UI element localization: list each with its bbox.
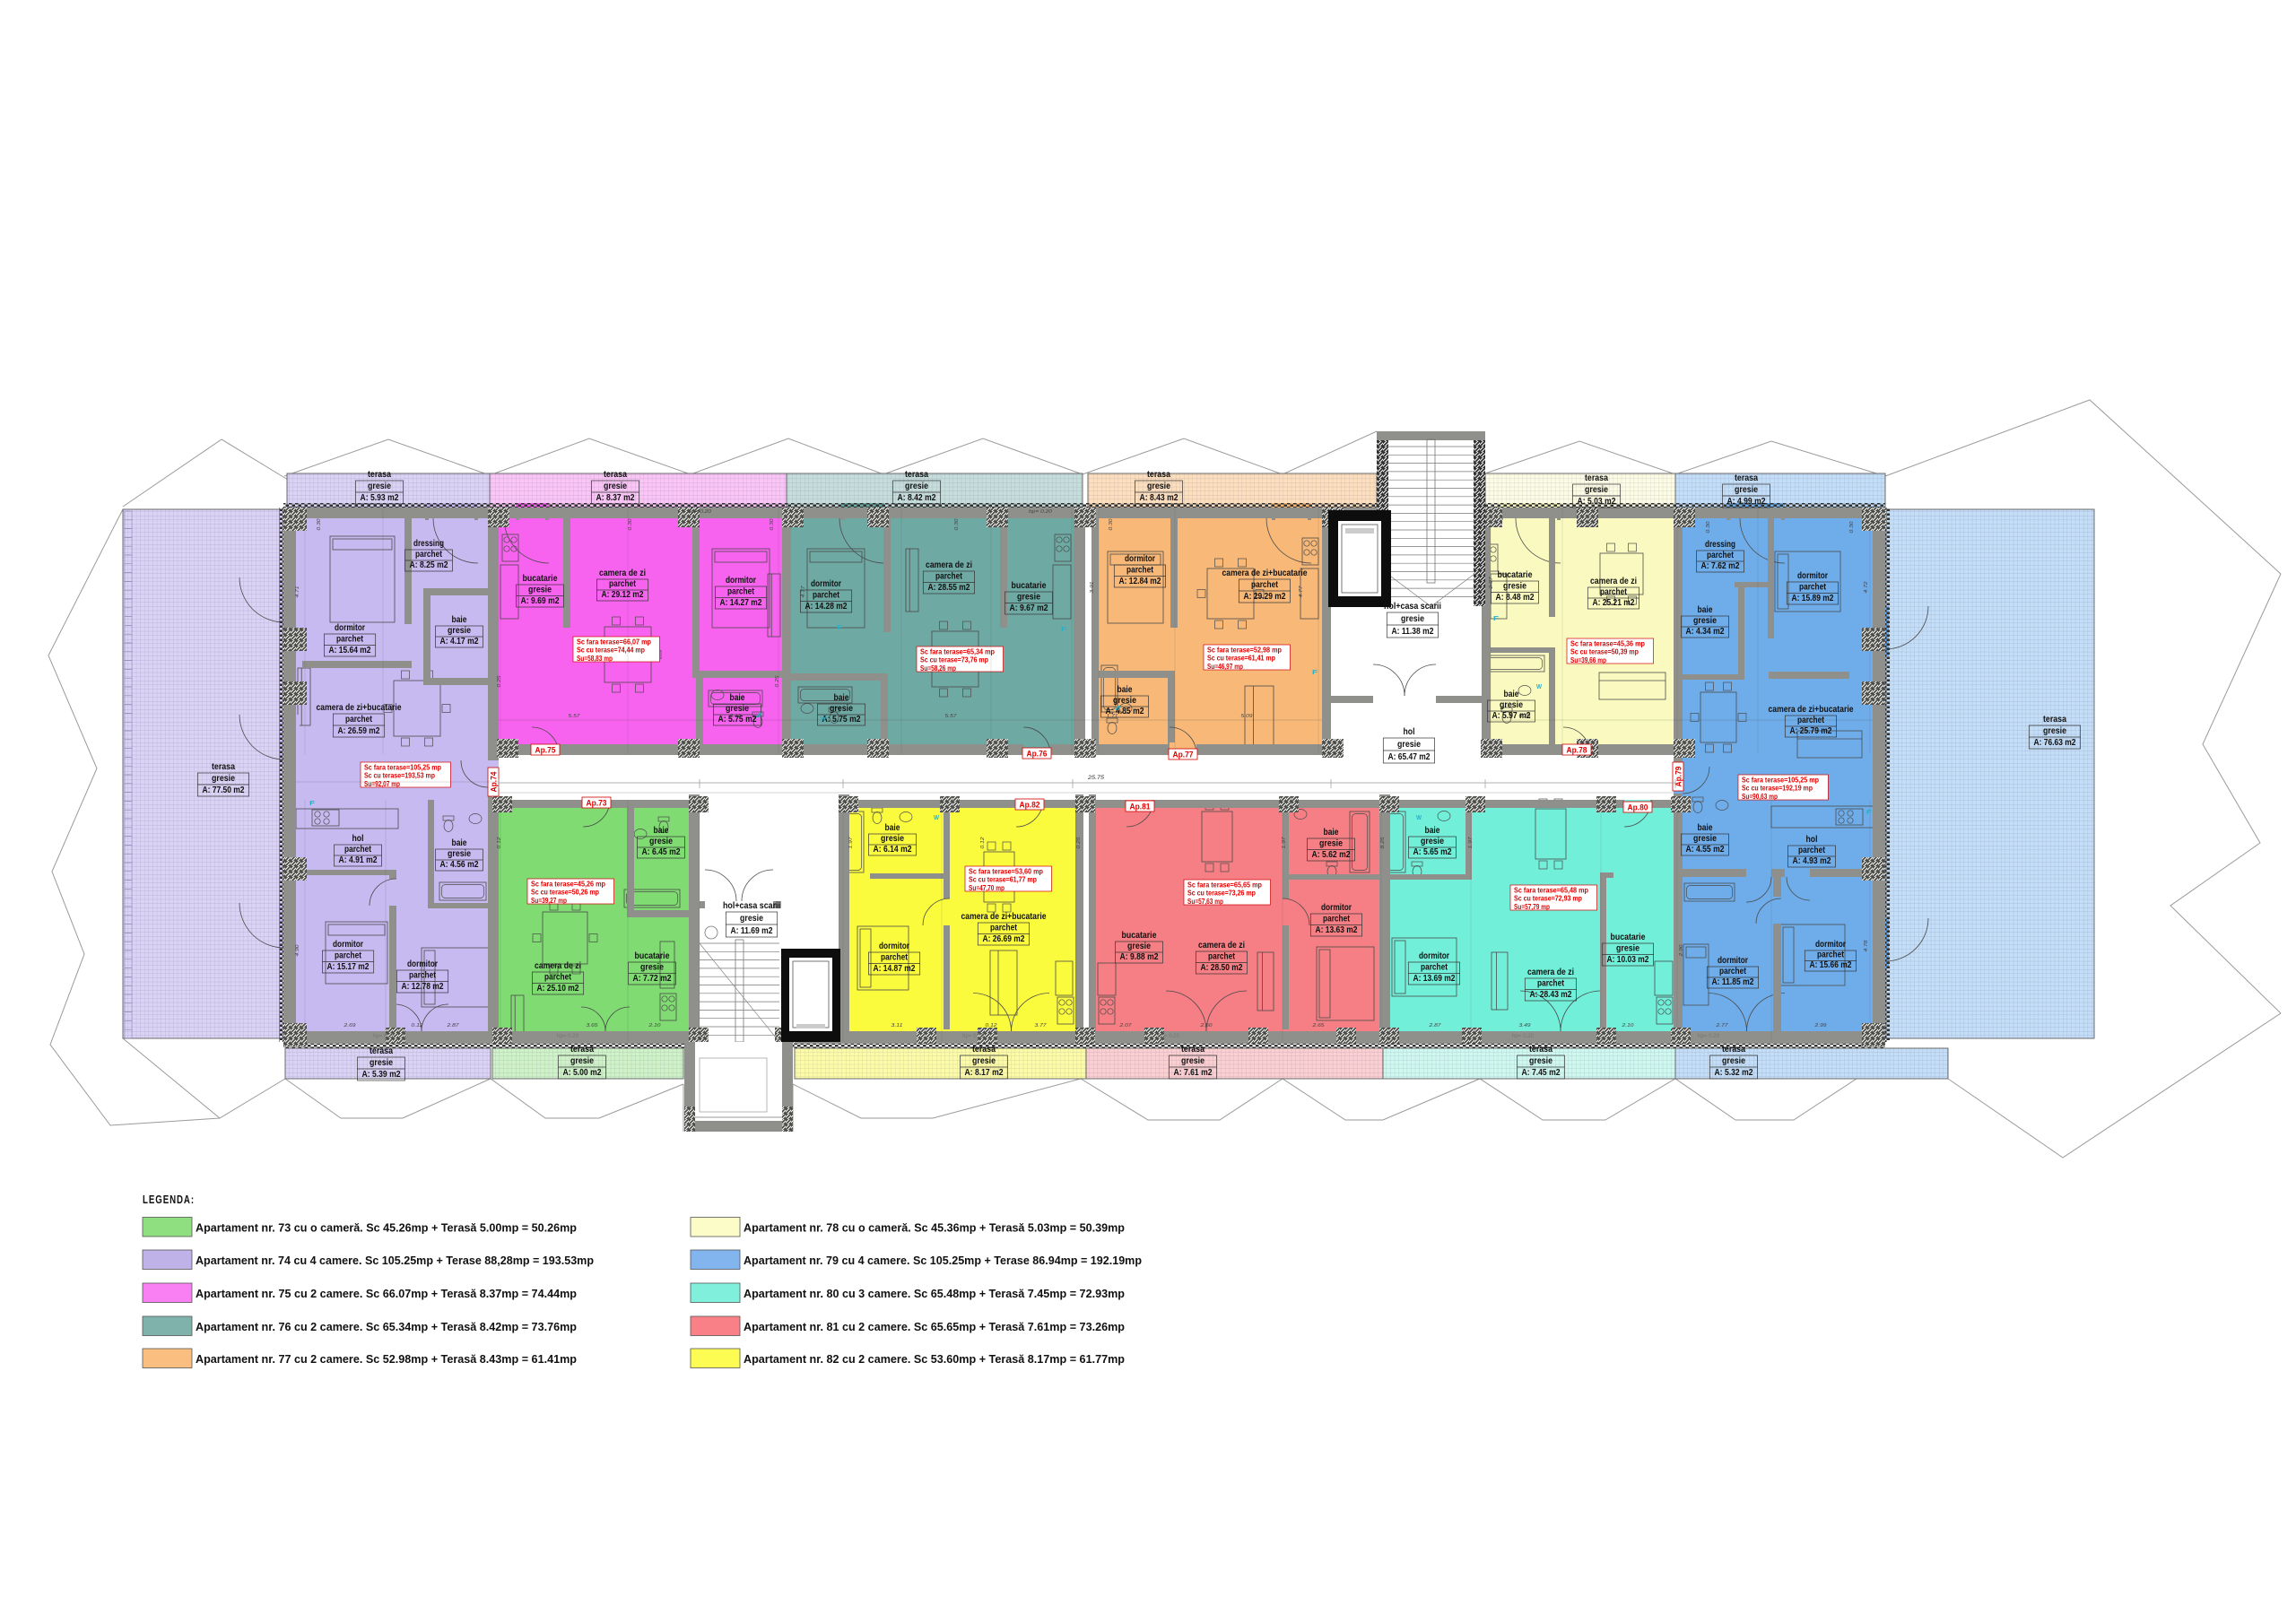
svg-text:gresie: gresie (1017, 592, 1040, 603)
svg-text:Su=57,63 mp: Su=57,63 mp (1187, 897, 1223, 906)
svg-text:terasa: terasa (1181, 1044, 1205, 1055)
svg-text:gresie: gresie (1397, 739, 1421, 750)
svg-text:gresie: gresie (1693, 833, 1717, 844)
svg-text:hol: hol (1806, 834, 1818, 845)
svg-text:camera de zi: camera de zi (1198, 940, 1245, 950)
svg-text:3.11: 3.11 (891, 1023, 903, 1028)
svg-text:A: 29.29 m2: A: 29.29 m2 (1244, 591, 1286, 602)
svg-text:hp= 0.20: hp= 0.20 (373, 1034, 396, 1039)
svg-text:camera de zi: camera de zi (1527, 967, 1574, 977)
svg-text:parchet: parchet (1600, 586, 1627, 597)
svg-text:bucatarie: bucatarie (523, 573, 558, 584)
svg-text:parchet: parchet (1798, 845, 1825, 855)
svg-text:parchet: parchet (345, 714, 372, 725)
svg-text:A: 14.28 m2: A: 14.28 m2 (805, 601, 848, 612)
svg-text:parchet: parchet (727, 586, 754, 597)
svg-text:gresie: gresie (1503, 581, 1526, 592)
svg-text:parchet: parchet (881, 952, 908, 963)
svg-text:5.57: 5.57 (569, 714, 581, 719)
svg-text:A: 12.84 m2: A: 12.84 m2 (1119, 576, 1161, 586)
svg-text:dormitor: dormitor (1815, 939, 1846, 950)
svg-text:gresie: gresie (528, 585, 552, 595)
svg-text:A: 13.63 m2: A: 13.63 m2 (1316, 924, 1358, 935)
svg-text:gresie: gresie (726, 703, 749, 714)
svg-text:terasa: terasa (1722, 1044, 1745, 1055)
svg-text:bucatarie: bucatarie (1122, 930, 1157, 941)
svg-text:Su=47,70 mp: Su=47,70 mp (969, 883, 1004, 892)
svg-text:gresie: gresie (640, 962, 664, 973)
svg-text:gresie: gresie (649, 836, 673, 846)
svg-text:parchet: parchet (1817, 950, 1844, 960)
svg-text:parchet: parchet (415, 549, 442, 560)
svg-text:parchet: parchet (1421, 962, 1448, 973)
svg-text:parchet: parchet (935, 571, 962, 582)
svg-text:A: 5.65 m2: A: 5.65 m2 (1413, 846, 1452, 857)
svg-text:gresie: gresie (1722, 1055, 1745, 1066)
svg-text:0.12: 0.12 (497, 837, 502, 849)
svg-text:Su=58,83 mp: Su=58,83 mp (577, 654, 613, 663)
svg-text:A: 25.79 m2: A: 25.79 m2 (1790, 725, 1832, 736)
svg-text:Su=39,66 mp: Su=39,66 mp (1570, 655, 1606, 664)
svg-text:0.30: 0.30 (317, 518, 322, 531)
svg-text:W: W (821, 716, 826, 723)
svg-text:hol: hol (352, 833, 364, 844)
svg-text:Ap.75: Ap.75 (535, 746, 557, 756)
svg-text:4.90: 4.90 (295, 944, 300, 957)
svg-text:parchet: parchet (336, 634, 363, 645)
svg-text:terasa: terasa (370, 1046, 393, 1056)
svg-text:A: 5.00 m2: A: 5.00 m2 (563, 1067, 602, 1078)
svg-text:gresie: gresie (1693, 615, 1717, 626)
svg-text:Su=46,97 mp: Su=46,97 mp (1207, 662, 1243, 671)
svg-text:Ap.76: Ap.76 (1027, 750, 1048, 759)
svg-text:parchet: parchet (1719, 966, 1746, 976)
svg-text:Apartament nr. 77 cu 2 camere.: Apartament nr. 77 cu 2 camere. Sc 52.98m… (196, 1352, 577, 1366)
svg-text:dormitor: dormitor (1321, 902, 1352, 913)
svg-text:parchet: parchet (335, 950, 361, 961)
svg-text:parchet: parchet (1537, 978, 1564, 989)
svg-text:dormitor: dormitor (1419, 950, 1449, 961)
svg-text:Apartament nr. 80 cu 3 camere.: Apartament nr. 80 cu 3 camere. Sc 65.48m… (744, 1287, 1125, 1300)
svg-text:3.65: 3.65 (587, 1023, 599, 1028)
svg-text:hp= 0.20: hp= 0.20 (1029, 509, 1053, 515)
svg-text:parchet: parchet (609, 578, 636, 589)
svg-text:camera de zi+bucatarie: camera de zi+bucatarie (317, 702, 402, 713)
svg-text:baie: baie (452, 614, 467, 625)
svg-text:Ap.74: Ap.74 (490, 771, 500, 793)
svg-text:hol+casa scarii: hol+casa scarii (1384, 601, 1441, 612)
svg-text:F: F (1312, 670, 1318, 676)
svg-text:terasa: terasa (368, 469, 391, 480)
svg-text:A: 28.43 m2: A: 28.43 m2 (1530, 989, 1572, 1000)
svg-text:A: 5.03 m2: A: 5.03 m2 (1578, 496, 1616, 507)
svg-text:A: 7.61 m2: A: 7.61 m2 (1174, 1067, 1213, 1078)
svg-text:1.97: 1.97 (1282, 837, 1287, 849)
svg-text:gresie: gresie (1421, 836, 1444, 846)
svg-text:baie: baie (1698, 822, 1713, 833)
svg-text:A: 5.93 m2: A: 5.93 m2 (361, 492, 399, 503)
svg-text:Su=90,63 mp: Su=90,63 mp (1742, 792, 1778, 801)
svg-text:2.07: 2.07 (1118, 1023, 1132, 1028)
svg-text:dormitor: dormitor (1718, 955, 1748, 966)
svg-text:F: F (1493, 616, 1500, 622)
svg-text:dormitor: dormitor (726, 575, 756, 586)
svg-text:parchet: parchet (544, 972, 571, 983)
svg-text:2.99: 2.99 (1813, 1023, 1827, 1028)
svg-text:A: 26.59 m2: A: 26.59 m2 (338, 725, 380, 736)
svg-text:gresie: gresie (1401, 613, 1424, 624)
svg-text:Apartament nr. 76 cu 2 camere.: Apartament nr. 76 cu 2 camere. Sc 65.34m… (196, 1320, 577, 1333)
svg-text:gresie: gresie (212, 773, 235, 784)
svg-text:dressing: dressing (1705, 539, 1735, 550)
svg-text:gresie: gresie (570, 1055, 594, 1066)
svg-text:0.25: 0.25 (775, 675, 780, 688)
svg-text:0.30: 0.30 (1849, 521, 1855, 534)
svg-text:hp= 0.20: hp= 0.20 (688, 509, 712, 515)
svg-text:baie: baie (1504, 689, 1519, 699)
svg-text:0.12: 0.12 (986, 1023, 998, 1028)
svg-text:0.25: 0.25 (1076, 837, 1082, 849)
svg-text:camera de zi: camera de zi (926, 560, 972, 570)
svg-text:bucatarie: bucatarie (1498, 569, 1533, 580)
svg-text:dormitor: dormitor (1125, 553, 1155, 564)
svg-text:hol+casa scarii: hol+casa scarii (723, 900, 780, 911)
svg-text:W: W (756, 713, 761, 719)
svg-text:A: 5.32 m2: A: 5.32 m2 (1715, 1067, 1753, 1078)
svg-text:A: 77.50 m2: A: 77.50 m2 (203, 785, 245, 795)
svg-text:A: 4.93 m2: A: 4.93 m2 (1793, 855, 1831, 866)
svg-text:Su=58,26 mp: Su=58,26 mp (920, 664, 956, 673)
svg-text:gresie: gresie (1529, 1055, 1552, 1066)
svg-text:gresie: gresie (1181, 1055, 1205, 1066)
svg-text:2.77: 2.77 (1715, 1023, 1728, 1028)
svg-text:A: 14.27 m2: A: 14.27 m2 (720, 597, 762, 608)
svg-text:terasa: terasa (1529, 1044, 1552, 1055)
svg-text:0.12: 0.12 (412, 1023, 424, 1028)
svg-text:A: 4.56 m2: A: 4.56 m2 (440, 859, 479, 870)
svg-text:baie: baie (1324, 827, 1339, 838)
svg-text:25.75: 25.75 (1087, 775, 1105, 781)
svg-text:dormitor: dormitor (407, 959, 438, 969)
svg-text:terasa: terasa (972, 1044, 996, 1055)
svg-text:F: F (837, 625, 843, 631)
svg-text:camera de zi+bucatarie: camera de zi+bucatarie (1222, 568, 1308, 578)
svg-text:terasa: terasa (1585, 473, 1608, 483)
svg-text:parchet: parchet (344, 844, 371, 855)
svg-text:hp= 0.20: hp= 0.20 (557, 1034, 579, 1039)
svg-text:A: 11.38 m2: A: 11.38 m2 (1392, 626, 1434, 637)
svg-text:camera de zi: camera de zi (535, 960, 581, 971)
svg-text:A: 4.91 m2: A: 4.91 m2 (339, 855, 378, 865)
svg-text:A: 25.21 m2: A: 25.21 m2 (1593, 597, 1635, 608)
svg-text:gresie: gresie (881, 833, 904, 844)
svg-text:terasa: terasa (604, 469, 627, 480)
svg-text:A: 29.12 m2: A: 29.12 m2 (602, 589, 644, 600)
svg-text:2.10: 2.10 (1621, 1023, 1634, 1028)
svg-text:A: 7.45 m2: A: 7.45 m2 (1522, 1067, 1561, 1078)
svg-text:gresie: gresie (448, 625, 471, 636)
svg-text:gresie: gresie (370, 1057, 393, 1068)
svg-text:baie: baie (1698, 604, 1713, 615)
svg-text:A: 8.17 m2: A: 8.17 m2 (965, 1067, 1004, 1078)
svg-text:A: 12.78 m2: A: 12.78 m2 (402, 981, 444, 992)
svg-text:0.25: 0.25 (1519, 714, 1532, 719)
svg-text:parchet: parchet (409, 970, 436, 981)
svg-text:parchet: parchet (990, 923, 1017, 933)
svg-text:Apartament nr. 79 cu 4 camere.: Apartament nr. 79 cu 4 camere. Sc 105.25… (744, 1254, 1142, 1267)
svg-text:dormitor: dormitor (335, 622, 365, 633)
svg-text:parchet: parchet (1323, 914, 1350, 924)
svg-text:terasa: terasa (570, 1044, 594, 1055)
svg-text:Apartament nr. 74 cu 4 camere.: Apartament nr. 74 cu 4 camere. Sc 105.25… (196, 1254, 594, 1267)
svg-text:baie: baie (730, 692, 745, 703)
svg-text:parchet: parchet (1126, 565, 1153, 576)
svg-text:2.50: 2.50 (1199, 1023, 1213, 1028)
svg-text:parchet: parchet (1208, 951, 1235, 962)
svg-text:parchet: parchet (1799, 582, 1826, 593)
svg-text:baie: baie (452, 838, 467, 848)
svg-text:Ap.80: Ap.80 (1628, 803, 1648, 813)
svg-text:gresie: gresie (1500, 699, 1523, 710)
svg-text:0.30: 0.30 (1706, 521, 1711, 534)
svg-text:A: 8.25 m2: A: 8.25 m2 (410, 560, 448, 570)
svg-text:4.77: 4.77 (1299, 586, 1304, 598)
svg-text:A: 15.89 m2: A: 15.89 m2 (1792, 593, 1834, 603)
svg-text:A: 9.69 m2: A: 9.69 m2 (521, 595, 560, 606)
svg-text:gresie: gresie (1127, 941, 1151, 951)
svg-text:gresie: gresie (368, 481, 391, 491)
svg-text:0.30: 0.30 (954, 518, 960, 531)
svg-text:Su=39,27 mp: Su=39,27 mp (531, 896, 567, 905)
svg-text:Apartament nr. 82 cu 2 camere.: Apartament nr. 82 cu 2 camere. Sc 53.60m… (744, 1352, 1125, 1366)
svg-text:A: 6.45 m2: A: 6.45 m2 (642, 846, 681, 857)
svg-text:dormitor: dormitor (811, 578, 841, 589)
svg-text:parchet: parchet (813, 590, 839, 601)
svg-text:A: 6.14 m2: A: 6.14 m2 (874, 844, 912, 855)
svg-text:gresie: gresie (604, 481, 627, 491)
svg-text:2.69: 2.69 (343, 1023, 356, 1028)
svg-text:0.12: 0.12 (980, 837, 986, 849)
svg-text:0.12: 0.12 (730, 714, 743, 719)
svg-text:dormitor: dormitor (333, 939, 363, 950)
svg-text:gresie: gresie (2043, 725, 2066, 736)
svg-text:gresie: gresie (740, 913, 763, 924)
svg-text:A: 25.10 m2: A: 25.10 m2 (537, 983, 579, 994)
svg-text:gresie: gresie (1319, 838, 1343, 849)
svg-text:2.87: 2.87 (446, 1023, 459, 1028)
svg-text:A: 8.37 m2: A: 8.37 m2 (596, 492, 635, 503)
svg-text:A: 13.69 m2: A: 13.69 m2 (1413, 973, 1456, 984)
svg-text:A: 65.47 m2: A: 65.47 m2 (1388, 751, 1431, 762)
svg-text:5.57: 5.57 (945, 714, 958, 719)
svg-text:A: 8.48 m2: A: 8.48 m2 (1496, 592, 1535, 603)
svg-text:A: 4.17 m2: A: 4.17 m2 (440, 636, 479, 647)
svg-text:A: 4.34 m2: A: 4.34 m2 (1686, 626, 1725, 637)
svg-text:parchet: parchet (1707, 550, 1734, 560)
svg-text:bucatarie: bucatarie (635, 950, 670, 961)
svg-text:hp= 0.20: hp= 0.20 (1158, 1034, 1180, 1039)
svg-text:A: 28.55 m2: A: 28.55 m2 (928, 582, 970, 593)
svg-text:camera de zi: camera de zi (599, 568, 646, 578)
svg-text:F: F (1061, 627, 1067, 633)
svg-text:4.77: 4.77 (801, 586, 806, 598)
svg-text:baie: baie (1118, 684, 1133, 695)
svg-text:Apartament nr. 78 cu o cameră.: Apartament nr. 78 cu o cameră. Sc 45.36m… (744, 1221, 1125, 1235)
svg-text:gresie: gresie (905, 481, 928, 491)
svg-text:A: 28.50 m2: A: 28.50 m2 (1201, 962, 1243, 973)
svg-text:4.78: 4.78 (1864, 940, 1869, 952)
svg-text:gresie: gresie (1585, 484, 1608, 495)
svg-text:A: 8.43 m2: A: 8.43 m2 (1140, 492, 1178, 503)
svg-text:terasa: terasa (905, 469, 928, 480)
svg-text:A: 8.42 m2: A: 8.42 m2 (898, 492, 936, 503)
svg-text:A: 9.88 m2: A: 9.88 m2 (1120, 951, 1159, 962)
svg-text:0.30: 0.30 (1109, 518, 1114, 531)
svg-text:gresie: gresie (830, 703, 853, 714)
svg-text:0.25: 0.25 (497, 675, 502, 688)
svg-text:Ap.77: Ap.77 (1173, 751, 1194, 760)
svg-text:5.09: 5.09 (1241, 714, 1254, 719)
svg-text:A: 5.39 m2: A: 5.39 m2 (362, 1069, 401, 1080)
svg-text:Apartament nr. 81 cu 2 camere.: Apartament nr. 81 cu 2 camere. Sc 65.65m… (744, 1320, 1125, 1333)
svg-text:Ap.78: Ap.78 (1567, 746, 1587, 756)
svg-text:hol: hol (1404, 726, 1415, 737)
svg-text:F: F (1866, 810, 1873, 816)
svg-text:4.71: 4.71 (295, 586, 300, 598)
svg-text:W: W (1416, 815, 1422, 821)
svg-text:terasa: terasa (1147, 469, 1170, 480)
svg-text:A: 11.69 m2: A: 11.69 m2 (731, 925, 773, 936)
svg-text:baie: baie (654, 825, 669, 836)
svg-text:parchet: parchet (1251, 579, 1278, 590)
svg-text:gresie: gresie (1616, 943, 1639, 954)
svg-text:A: 26.69 m2: A: 26.69 m2 (983, 933, 1025, 944)
svg-text:W: W (1536, 684, 1542, 690)
svg-text:hp= 0.20: hp= 0.20 (962, 1034, 985, 1039)
svg-text:dormitor: dormitor (1797, 570, 1828, 581)
svg-text:A: 4.55 m2: A: 4.55 m2 (1686, 844, 1725, 855)
svg-text:W: W (934, 815, 939, 821)
svg-text:terasa: terasa (2043, 714, 2066, 725)
svg-text:Ap.73: Ap.73 (587, 799, 607, 809)
svg-text:A: 5.75 m2: A: 5.75 m2 (822, 714, 861, 725)
svg-text:baie: baie (834, 692, 849, 703)
svg-text:gresie: gresie (1113, 695, 1136, 706)
svg-text:3.49: 3.49 (1519, 1023, 1532, 1028)
svg-text:4.72: 4.72 (1864, 581, 1869, 594)
svg-text:2.87: 2.87 (1428, 1023, 1441, 1028)
svg-text:F: F (309, 801, 316, 807)
svg-text:A: 10.03 m2: A: 10.03 m2 (1607, 954, 1649, 965)
svg-text:bucatarie: bucatarie (1611, 932, 1646, 942)
svg-text:LEGENDA:: LEGENDA: (143, 1193, 195, 1206)
svg-text:Apartament nr. 73 cu o cameră.: Apartament nr. 73 cu o cameră. Sc 45.26m… (196, 1221, 577, 1235)
svg-text:A: 14.87 m2: A: 14.87 m2 (874, 963, 916, 974)
svg-text:hp= 0.20: hp= 0.20 (1512, 1034, 1535, 1039)
svg-text:A: 7.62 m2: A: 7.62 m2 (1701, 560, 1740, 571)
svg-text:2.10: 2.10 (648, 1023, 661, 1028)
svg-text:3.77: 3.77 (1035, 1023, 1048, 1028)
svg-text:W: W (1115, 706, 1120, 712)
svg-text:A: 11.85 m2: A: 11.85 m2 (1712, 976, 1754, 987)
svg-text:1.97: 1.97 (1468, 837, 1474, 849)
svg-text:gresie: gresie (448, 848, 471, 859)
svg-text:camera de zi+bucatarie: camera de zi+bucatarie (1769, 704, 1854, 715)
svg-text:1.97: 1.97 (848, 837, 854, 849)
svg-text:terasa: terasa (1735, 473, 1758, 483)
svg-text:A: 15.17 m2: A: 15.17 m2 (327, 961, 370, 972)
svg-text:A: 7.72 m2: A: 7.72 m2 (633, 973, 672, 984)
svg-text:Su=92,07 mp: Su=92,07 mp (364, 779, 400, 788)
svg-text:camera de zi+bucatarie: camera de zi+bucatarie (961, 911, 1047, 922)
svg-text:dressing: dressing (413, 538, 444, 549)
svg-text:A: 76.63 m2: A: 76.63 m2 (2034, 737, 2076, 748)
svg-text:gresie: gresie (972, 1055, 996, 1066)
svg-text:2.90: 2.90 (1679, 944, 1684, 958)
svg-text:8.25: 8.25 (1380, 837, 1386, 849)
svg-text:2.65: 2.65 (1311, 1023, 1325, 1028)
svg-text:bucatarie: bucatarie (1012, 580, 1047, 591)
svg-text:A: 9.67 m2: A: 9.67 m2 (1010, 603, 1048, 613)
svg-text:camera de zi: camera de zi (1590, 576, 1637, 586)
svg-text:terasa: terasa (212, 761, 235, 772)
svg-text:gresie: gresie (1147, 481, 1170, 491)
svg-text:baie: baie (885, 822, 900, 833)
svg-text:1.71: 1.71 (1107, 714, 1118, 719)
svg-text:Su=57,79 mp: Su=57,79 mp (1514, 902, 1550, 911)
svg-text:0.30: 0.30 (770, 518, 775, 531)
svg-text:A: 15.64 m2: A: 15.64 m2 (329, 645, 371, 655)
svg-text:2.97: 2.97 (1489, 577, 1494, 590)
svg-text:A: 5.62 m2: A: 5.62 m2 (1312, 849, 1351, 860)
svg-text:Ap.81: Ap.81 (1130, 803, 1152, 812)
svg-text:hp= 0.20: hp= 0.20 (1698, 1034, 1720, 1039)
svg-text:Ap.82: Ap.82 (1020, 801, 1040, 811)
svg-text:A: 15.66 m2: A: 15.66 m2 (1810, 959, 1852, 970)
svg-text:dormitor: dormitor (879, 941, 909, 951)
svg-text:3.91: 3.91 (1090, 582, 1095, 594)
svg-text:A: 4.99 m2: A: 4.99 m2 (1727, 496, 1766, 507)
svg-text:baie: baie (1425, 825, 1440, 836)
svg-text:Apartament nr. 75 cu 2 camere.: Apartament nr. 75 cu 2 camere. Sc 66.07m… (196, 1287, 577, 1300)
svg-text:gresie: gresie (1735, 484, 1758, 495)
svg-text:0.30: 0.30 (628, 518, 633, 531)
